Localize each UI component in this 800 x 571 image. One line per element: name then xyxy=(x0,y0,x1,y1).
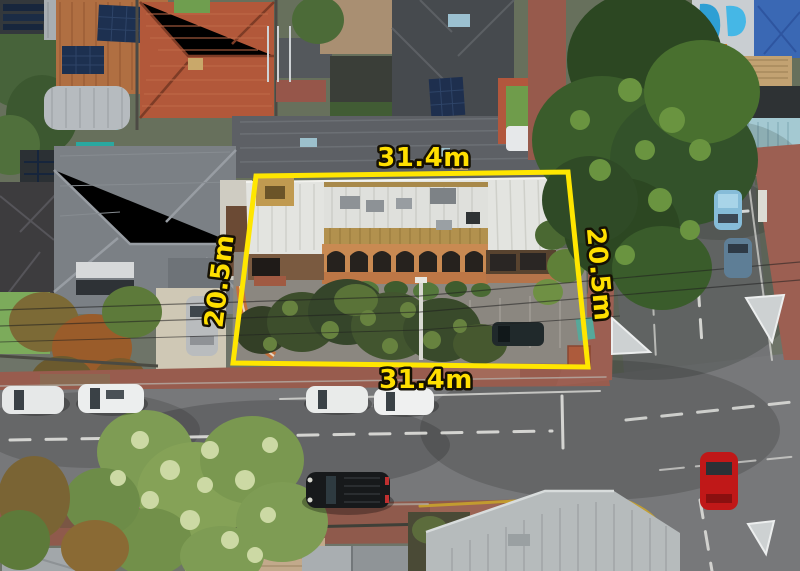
dimension-label-top: 31.4m xyxy=(377,143,471,173)
red-car xyxy=(700,452,738,510)
light-pole xyxy=(419,282,423,360)
aerial-photo-canvas: 31.4m 20.5m 20.5m 31.4m xyxy=(0,0,800,571)
aerial-photo: 31.4m 20.5m 20.5m 31.4m xyxy=(0,0,800,571)
dimension-label-bottom: 31.4m xyxy=(379,365,473,395)
black-suv xyxy=(302,472,394,515)
property-lot xyxy=(220,176,595,366)
